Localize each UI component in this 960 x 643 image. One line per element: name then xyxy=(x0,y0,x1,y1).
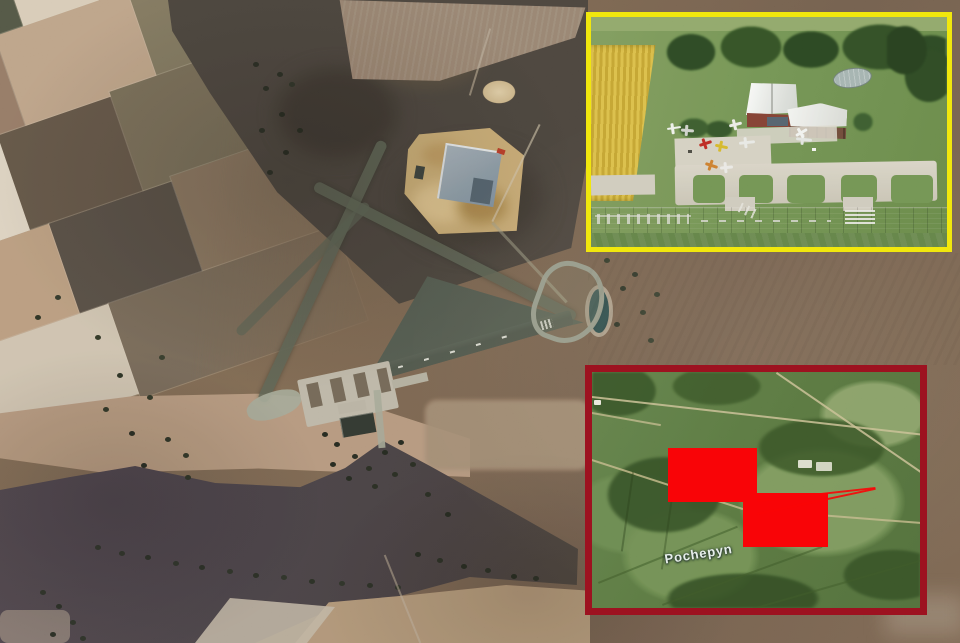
apron-island xyxy=(353,372,370,398)
aerial-photo-inset xyxy=(586,12,952,252)
photo-runway xyxy=(591,207,947,234)
tree-cluster xyxy=(40,590,46,595)
map-inset: Pochepyn xyxy=(585,365,927,615)
sand-pile xyxy=(476,76,522,108)
hangar-roof-ridge xyxy=(771,83,773,115)
photo-apron-island xyxy=(787,175,825,203)
runway-threshold-marks xyxy=(597,214,689,224)
vehicle-dot xyxy=(688,150,692,153)
tree-cluster xyxy=(95,335,101,340)
photo-apron-left-strip xyxy=(591,174,655,195)
site-building xyxy=(437,143,502,207)
tree-cluster xyxy=(253,62,259,67)
apron-island xyxy=(306,382,323,408)
runway-piano-marks xyxy=(845,210,875,224)
tree-line xyxy=(415,552,421,557)
map-compound xyxy=(816,462,832,471)
tree-line xyxy=(95,545,101,550)
apron-island xyxy=(330,377,347,403)
streak-texture xyxy=(588,253,960,365)
map-compound xyxy=(798,460,812,468)
runway-centerline xyxy=(701,220,831,222)
vehicle-dot xyxy=(812,148,816,151)
photo-apron-island xyxy=(693,175,725,203)
site-building-annex xyxy=(470,178,494,205)
photo-tree-cluster-right xyxy=(887,25,947,109)
photo-bush xyxy=(847,107,879,137)
photo-hangar-door xyxy=(767,117,788,126)
photo-apron-island xyxy=(891,175,933,203)
map-building-dot xyxy=(594,400,601,405)
tan-field-southeast xyxy=(425,400,590,470)
pale-corner-bottom-left xyxy=(0,610,70,643)
satellite-composite: Pochepyn xyxy=(0,0,960,643)
photo-grass-foreground xyxy=(591,233,947,247)
tree-cluster xyxy=(322,432,328,437)
